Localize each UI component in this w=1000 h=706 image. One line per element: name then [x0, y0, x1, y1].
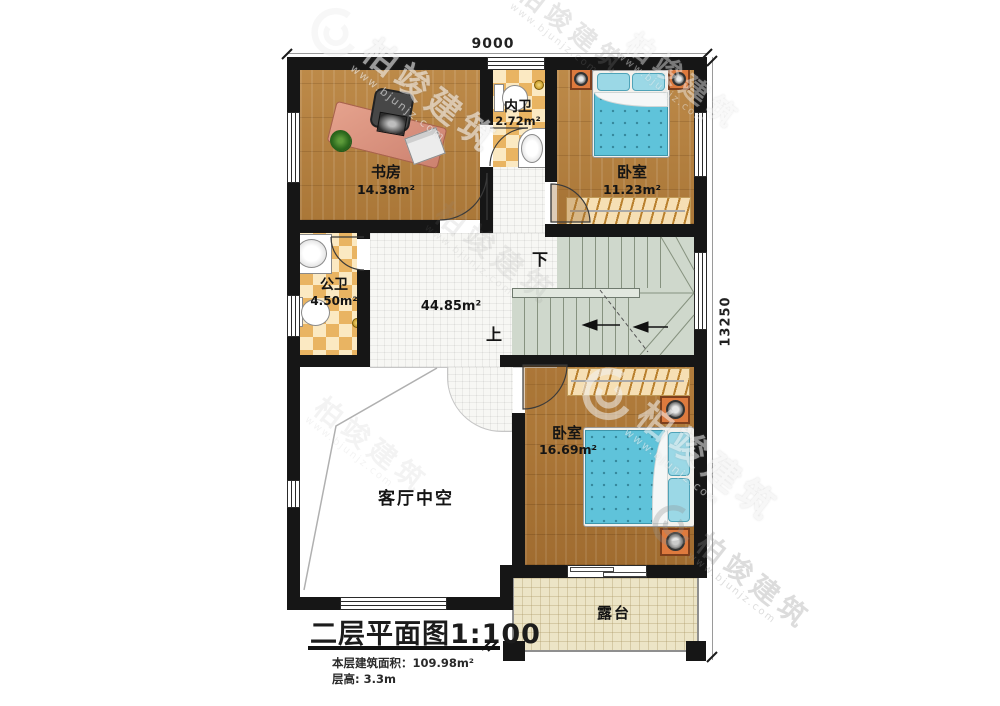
stair-upper-treads — [557, 237, 661, 288]
dimension-top-value: 9000 — [463, 36, 523, 52]
bedroom2-area: 16.69m² — [539, 444, 597, 457]
bedroom2-pillow — [668, 478, 690, 522]
watermark-brand: 柏竣建筑 — [691, 528, 816, 635]
sliding-door-panel — [603, 572, 647, 577]
study-area: 14.38m² — [357, 184, 415, 197]
bedroom2-label: 卧室 — [552, 426, 582, 441]
bedroom1-lamp — [574, 72, 588, 86]
stair-handrail — [512, 288, 640, 298]
wall-study-east-b — [480, 167, 493, 233]
bedroom2-closet — [567, 368, 690, 396]
window-left-void — [287, 480, 300, 508]
study-label: 书房 — [371, 165, 401, 180]
public-bath-area: 4.50m² — [310, 295, 357, 307]
window-right-stairs — [694, 252, 707, 330]
floor-height-text: 层高: 3.3m — [332, 671, 396, 687]
terrace-post-right — [686, 641, 706, 661]
ensuite-bath-label: 内卫 — [504, 100, 532, 114]
wall-bedroom2-south-right — [647, 565, 707, 578]
title-underline — [308, 646, 500, 650]
wall-stairs-south — [500, 355, 707, 367]
window-left-bath — [287, 295, 300, 337]
bedroom2-closet-rod — [571, 380, 684, 382]
wall-public-bath-south — [287, 355, 370, 367]
stairs-up-label: 上 — [486, 327, 502, 343]
floor-area-text: 本层建筑面积：109.98m² — [332, 655, 474, 671]
wall-public-bath-east-a — [357, 233, 370, 239]
window-right-bedroom1 — [694, 112, 707, 177]
potted-plant — [330, 130, 351, 151]
ensuite-sink-basin — [521, 134, 543, 163]
bedroom1-closet — [566, 197, 691, 227]
watermark-brand: 柏竣建筑 — [309, 392, 434, 499]
bedroom2-lamp — [666, 400, 685, 419]
hall-area: 44.85m² — [421, 300, 481, 313]
bedroom1-area: 11.23m² — [603, 184, 661, 197]
stairs-down-label: 下 — [532, 252, 548, 268]
public-bath-label: 公卫 — [320, 278, 348, 292]
bedroom1-lamp — [672, 72, 686, 86]
ensuite-bath-area: 2.72m² — [495, 116, 540, 128]
bedroom2-lamp — [666, 532, 685, 551]
window-top-ensuite — [487, 57, 545, 70]
stair-lower-treads — [512, 298, 640, 355]
hall-corridor — [447, 367, 513, 432]
wall-void-terrace — [500, 565, 513, 610]
wall-study-east-a — [480, 70, 493, 125]
dimension-right-value: 13250 — [719, 292, 734, 352]
dimension-line-top — [287, 53, 707, 54]
terrace-label: 露台 — [597, 606, 631, 621]
dimension-line-right — [712, 57, 713, 660]
living-void-label: 客厅中空 — [378, 491, 454, 508]
bedroom1-pillow — [632, 73, 665, 91]
public-bath-sink-basin — [296, 239, 327, 268]
ensuite-towel-ring — [534, 80, 544, 90]
window-bottom-void — [340, 597, 447, 610]
wall-public-bath-east-b — [357, 270, 370, 367]
floor-plan-canvas: 9000 13250 书房 14.38m² 内卫 2.72m² 卧室 11.23… — [0, 0, 1000, 706]
bedroom1-label: 卧室 — [617, 165, 647, 180]
hall-floor-notch — [493, 167, 545, 233]
bedroom1-closet-rod — [570, 210, 685, 212]
wall-bedroom1-south — [545, 224, 707, 237]
wall-bedroom2-west — [512, 413, 525, 565]
window-left-study — [287, 112, 300, 183]
bedroom2-pillow — [668, 432, 690, 476]
wall-ensuite-east — [545, 70, 557, 182]
sliding-door-terrace — [567, 565, 647, 578]
study-desk-group — [328, 88, 450, 168]
living-void-boundary — [304, 368, 437, 590]
bedroom1-pillow — [597, 73, 630, 91]
wall-study-south — [287, 220, 440, 233]
